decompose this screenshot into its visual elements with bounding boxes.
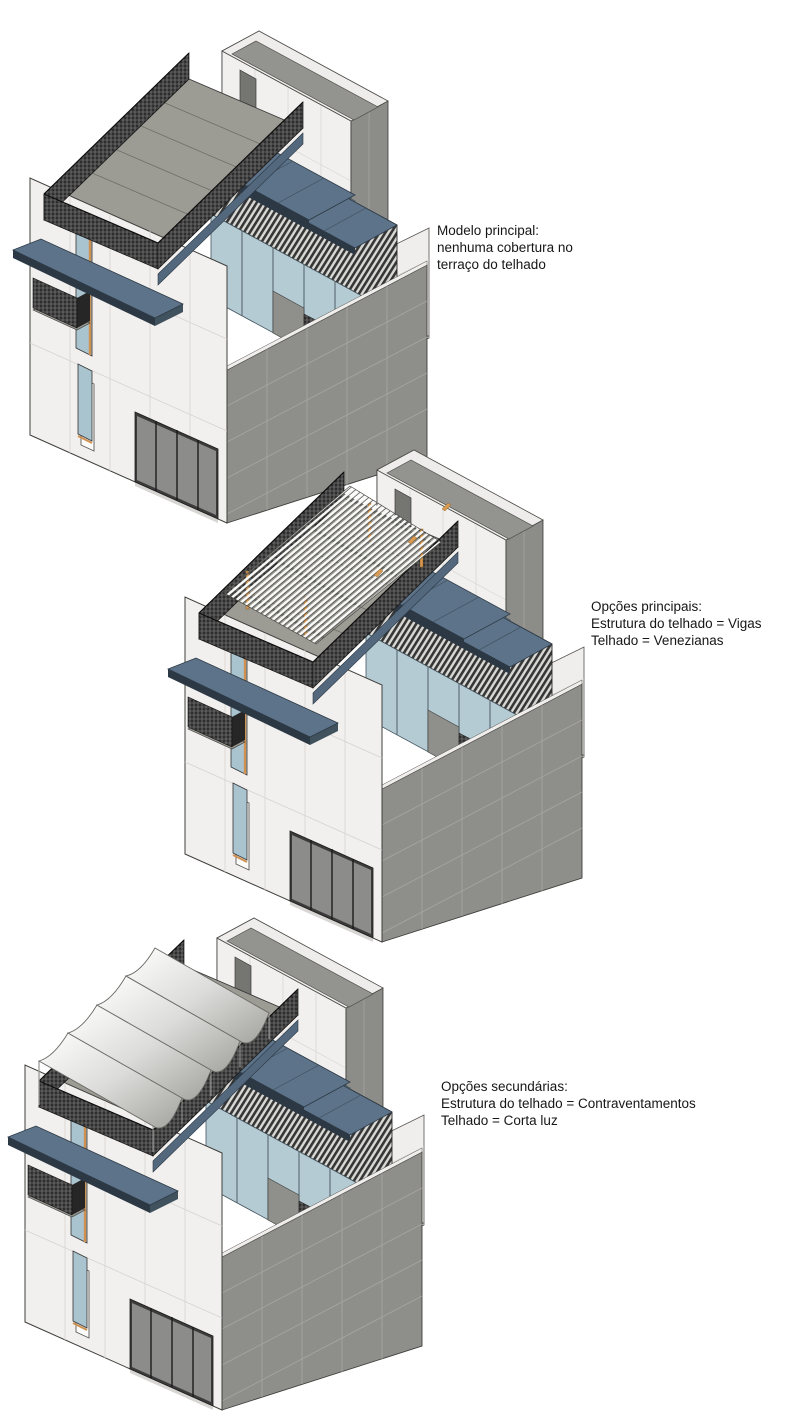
- caption-line: nenhuma cobertura no: [437, 239, 573, 256]
- caption-line: Telhado = Venezianas: [591, 632, 762, 649]
- caption-secondary-options: Opções secundárias: Estrutura do telhado…: [441, 1078, 696, 1129]
- three-building-views: [0, 0, 800, 1422]
- caption-line: Modelo principal:: [437, 222, 573, 239]
- design-options-sheet: Modelo principal: nenhuma cobertura no t…: [0, 0, 800, 1422]
- caption-line: Telhado = Corta luz: [441, 1112, 696, 1129]
- caption-line: Estrutura do telhado = Contraventamentos: [441, 1095, 696, 1112]
- caption-line: terraço do telhado: [437, 256, 573, 273]
- caption-main-model: Modelo principal: nenhuma cobertura no t…: [437, 222, 573, 273]
- caption-line: Opções secundárias:: [441, 1078, 696, 1095]
- caption-line: Estrutura do telhado = Vigas: [591, 615, 762, 632]
- figure-secondary-options: [8, 918, 424, 1410]
- caption-primary-options: Opções principais: Estrutura do telhado …: [591, 598, 762, 649]
- caption-line: Opções principais:: [591, 598, 762, 615]
- figure-primary-options: [168, 450, 584, 942]
- figure-main-model: [13, 31, 429, 523]
